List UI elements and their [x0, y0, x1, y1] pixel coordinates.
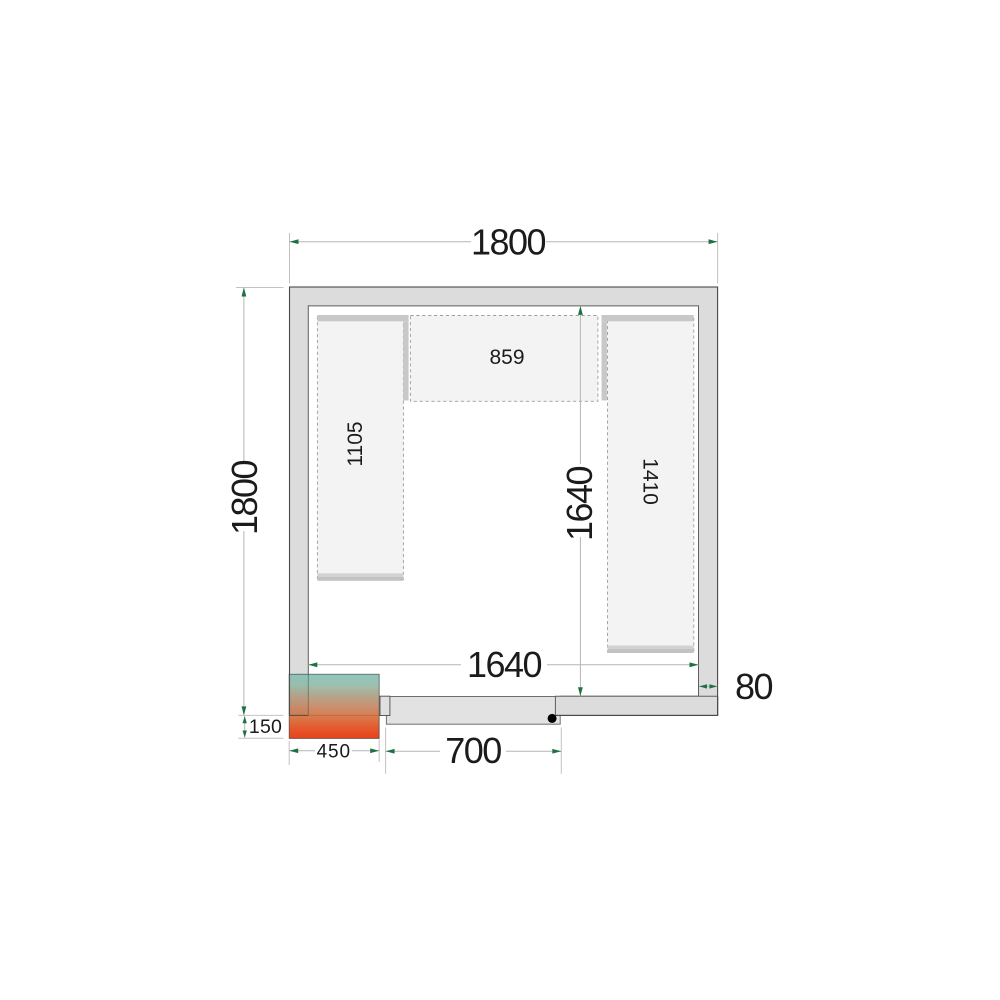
svg-text:1640: 1640 [467, 644, 542, 685]
svg-text:450: 450 [317, 742, 351, 763]
svg-text:1105: 1105 [344, 421, 367, 466]
svg-text:1640: 1640 [559, 466, 600, 541]
svg-text:700: 700 [445, 730, 501, 771]
svg-text:859: 859 [489, 346, 524, 369]
svg-text:1410: 1410 [639, 458, 662, 505]
svg-text:1800: 1800 [224, 460, 265, 535]
svg-text:1800: 1800 [471, 222, 546, 263]
svg-text:150: 150 [249, 716, 282, 738]
svg-text:80: 80 [735, 666, 773, 707]
